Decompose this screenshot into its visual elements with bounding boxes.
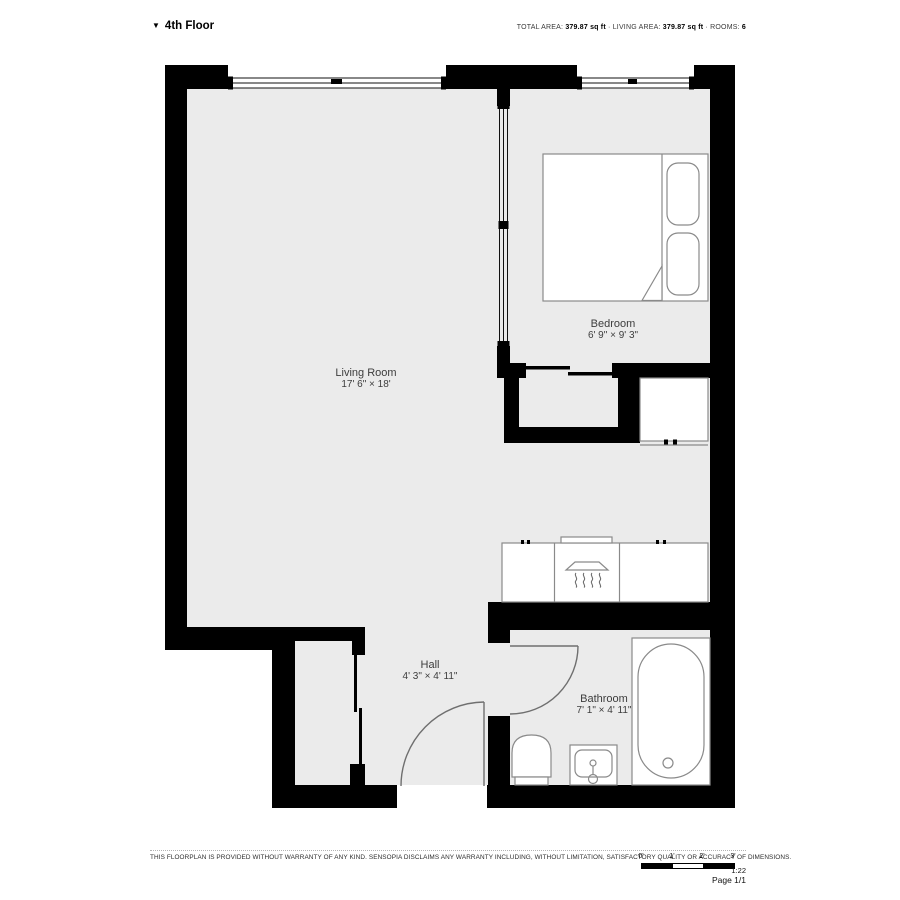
room-dimensions: 6' 9" × 9' 3" bbox=[588, 330, 638, 342]
scale-tick-2: 2' bbox=[699, 853, 704, 860]
pillow-bottom bbox=[667, 233, 699, 295]
hall-closet-top-wall bbox=[272, 627, 365, 641]
kitchen-counter bbox=[502, 537, 708, 602]
kitchen-bath-wall bbox=[488, 602, 710, 630]
wall-bottom-left bbox=[272, 785, 397, 808]
hall-closet-jamb-top bbox=[352, 638, 365, 655]
wall-right bbox=[710, 65, 735, 808]
wall-left bbox=[165, 65, 187, 650]
hall-bath-wall-upper bbox=[488, 602, 510, 643]
scale-segment-white bbox=[673, 864, 704, 868]
room-label-living-room: Living Room 17' 6" × 18' bbox=[335, 367, 396, 391]
hall-closet-slider-a bbox=[354, 653, 357, 712]
floorplan-drawing bbox=[0, 0, 900, 900]
room-label-bedroom: Bedroom 6' 9" × 9' 3" bbox=[588, 318, 638, 342]
window-top-left bbox=[228, 77, 446, 90]
hall-closet-slider-b bbox=[359, 708, 362, 766]
pantry-closet bbox=[640, 378, 708, 445]
bedroom-closet-slider-b bbox=[568, 372, 612, 376]
room-name: Living Room bbox=[335, 367, 396, 379]
hall-bath-wall-lower bbox=[488, 716, 510, 785]
room-label-bathroom: Bathroom 7' 1" × 4' 11" bbox=[577, 693, 632, 717]
room-name: Bathroom bbox=[577, 693, 632, 705]
scale-bar-segments bbox=[641, 863, 735, 869]
scale-segment-black-2 bbox=[703, 864, 734, 868]
room-name: Hall bbox=[403, 659, 458, 671]
room-name: Bedroom bbox=[588, 318, 638, 330]
room-label-hall: Hall 4' 3" × 4' 11" bbox=[403, 659, 458, 683]
glass-partition-window bbox=[498, 104, 510, 346]
room-dimensions: 17' 6" × 18' bbox=[335, 379, 396, 391]
wall-top-middle bbox=[446, 65, 577, 89]
scale-tick-1: 1' bbox=[669, 853, 674, 860]
closet-wall-right bbox=[618, 363, 640, 443]
window-top-right bbox=[577, 77, 694, 90]
scale-tick-3: 3' bbox=[730, 853, 735, 860]
bathroom-sink bbox=[570, 745, 617, 785]
floorplan-page: ▼ 4th Floor TOTAL AREA: 379.87 sq ft · L… bbox=[0, 0, 900, 900]
scale-tick-0: 0' bbox=[638, 853, 643, 860]
wall-bottom-right bbox=[487, 785, 735, 808]
room-dimensions: 4' 3" × 4' 11" bbox=[403, 671, 458, 683]
hall-closet-jamb-bottom bbox=[350, 764, 365, 785]
bedroom-closet-slider-a bbox=[526, 366, 570, 370]
page-number: Page 1/1 bbox=[712, 875, 746, 885]
stove-backsplash bbox=[561, 537, 612, 543]
partition-stub-top bbox=[497, 88, 510, 106]
wall-wing-left bbox=[272, 627, 295, 808]
room-dimensions: 7' 1" × 4' 11" bbox=[577, 705, 632, 717]
pillow-top bbox=[667, 163, 699, 225]
bathtub bbox=[632, 638, 710, 785]
footer-separator bbox=[150, 850, 746, 851]
bed bbox=[543, 154, 708, 301]
scale-segment-black bbox=[642, 864, 673, 868]
scale-ratio: 1:22 bbox=[731, 866, 746, 875]
toilet bbox=[512, 735, 551, 785]
